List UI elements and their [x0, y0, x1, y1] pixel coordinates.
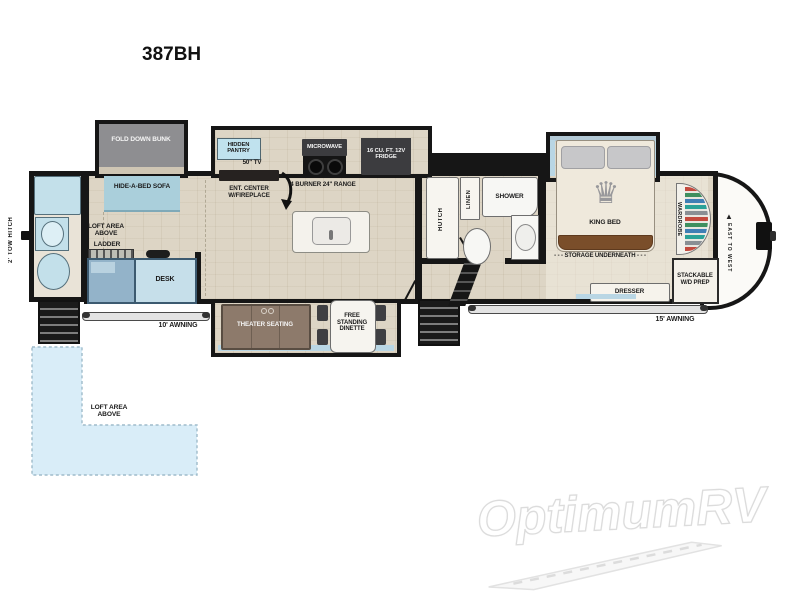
range: [303, 156, 346, 176]
king-bed: ♛ KING BED: [556, 140, 655, 252]
front-toilet: [37, 253, 70, 290]
tv-unit: [219, 170, 279, 181]
theater-seating-label: THEATER SEATING: [223, 322, 307, 329]
rear-awning-line: [468, 305, 708, 314]
linen-closet: LINEN: [460, 177, 480, 220]
bed-left-window: [550, 140, 555, 176]
desk-label: DESK: [136, 276, 194, 284]
desk-chair-unit: [87, 258, 136, 304]
dinette-table: FREE STANDING DINETTE: [330, 300, 376, 353]
bunk-slide: FOLD DOWN BUNK: [95, 120, 188, 178]
fridge-label: 16 CU. FT. 12V FRIDGE: [363, 148, 409, 161]
rear-hitch-knob: [770, 231, 776, 241]
mid-toilet: [463, 228, 491, 265]
dresser-window: [576, 294, 636, 299]
pillow: [607, 146, 651, 169]
stackable-wd-label: STACKABLE W/D PREP: [674, 273, 716, 286]
crown-icon: ♛: [581, 179, 631, 209]
linen-label: LINEN: [466, 184, 472, 214]
faucet-icon: [329, 230, 333, 240]
fold-down-bunk-label: FOLD DOWN BUNK: [105, 136, 177, 143]
loft-area-front-label: LOFT AREA ABOVE: [82, 223, 130, 238]
range-label: 4 BURNER 24" RANGE: [290, 182, 356, 189]
ent-center-label: ENT. CENTER W/FIREPLACE: [212, 186, 286, 200]
front-vanity: [35, 217, 69, 251]
front-awning-line: [82, 312, 210, 321]
dinette-label: FREE STANDING DINETTE: [332, 313, 372, 333]
bed-foot-band: [558, 235, 653, 250]
tow-hitch-label: 2' TOW HITCH: [8, 212, 14, 268]
front-entry-steps: [38, 300, 80, 344]
mid-entry-steps: [418, 299, 460, 346]
front-awning-label: 10' AWNING: [148, 322, 208, 330]
east-to-west-logo: ▲ EAST TO WEST: [718, 206, 740, 278]
mid-sink: [515, 224, 536, 251]
mountain-icon: ▲: [725, 212, 734, 221]
pillow: [561, 146, 605, 169]
rear-awning-label: 15' AWNING: [645, 316, 705, 324]
floorplan-title: 387BH: [142, 44, 201, 66]
burner-icon: [327, 159, 343, 175]
cupholder-icon: [268, 308, 274, 314]
floorplan-image: 387BH FOLD DOWN BUNK 10' AWNING 15' AWNI…: [0, 0, 800, 600]
theater-seating: THEATER SEATING: [221, 304, 311, 350]
microwave: MICROWAVE: [302, 139, 347, 156]
bunk-mat: [99, 167, 184, 174]
dinette-chair: [375, 329, 386, 345]
desk-lamp: [146, 250, 170, 258]
storage-underneath-label: - - - STORAGE UNDERNEATH - - -: [534, 253, 666, 260]
dinette-chair: [375, 305, 386, 321]
microwave-label: MICROWAVE: [302, 144, 347, 150]
watermark: OptimumRV: [475, 474, 800, 596]
east-to-west-label: EAST TO WEST: [726, 223, 732, 272]
ladder-label: LADDER: [84, 241, 130, 248]
hide-a-bed-sofa-label: HIDE-A-BED SOFA: [106, 183, 178, 190]
hidden-pantry-label: HIDDEN PANTRY: [218, 142, 259, 155]
desk-chair-cushion: [91, 262, 115, 273]
shower-label: SHOWER: [483, 193, 536, 200]
hutch: HUTCH: [426, 177, 459, 259]
dresser: DRESSER: [590, 283, 670, 302]
wall-kitchen-bed-gap: [428, 153, 546, 176]
wall-bath-right: [538, 176, 546, 264]
dinette-chair: [317, 305, 328, 321]
wardrobe-label: WARDROBE: [676, 190, 682, 248]
desk: DESK: [134, 258, 197, 304]
slide-travel-line-right: [205, 180, 206, 296]
king-bed-label: KING BED: [575, 219, 635, 226]
cupholder-icon: [261, 308, 267, 314]
tv-50-label: 50" TV: [230, 160, 274, 167]
tow-hitch-knob: [21, 231, 30, 240]
burner-icon: [308, 159, 324, 175]
dinette-chair: [317, 329, 328, 345]
fridge: 16 CU. FT. 12V FRIDGE: [361, 138, 411, 175]
front-shower: [34, 176, 81, 215]
mid-shower: SHOWER: [482, 177, 538, 217]
loft-area-bottom-label: LOFT AREA ABOVE: [84, 404, 134, 419]
kitchen-island: [292, 211, 370, 253]
stackable-wd-prep: STACKABLE W/D PREP: [672, 258, 719, 304]
front-sink: [41, 221, 64, 247]
hidden-pantry: HIDDEN PANTRY: [217, 138, 261, 160]
hide-a-bed-sofa: HIDE-A-BED SOFA: [104, 176, 180, 212]
hutch-label: HUTCH: [438, 196, 444, 242]
